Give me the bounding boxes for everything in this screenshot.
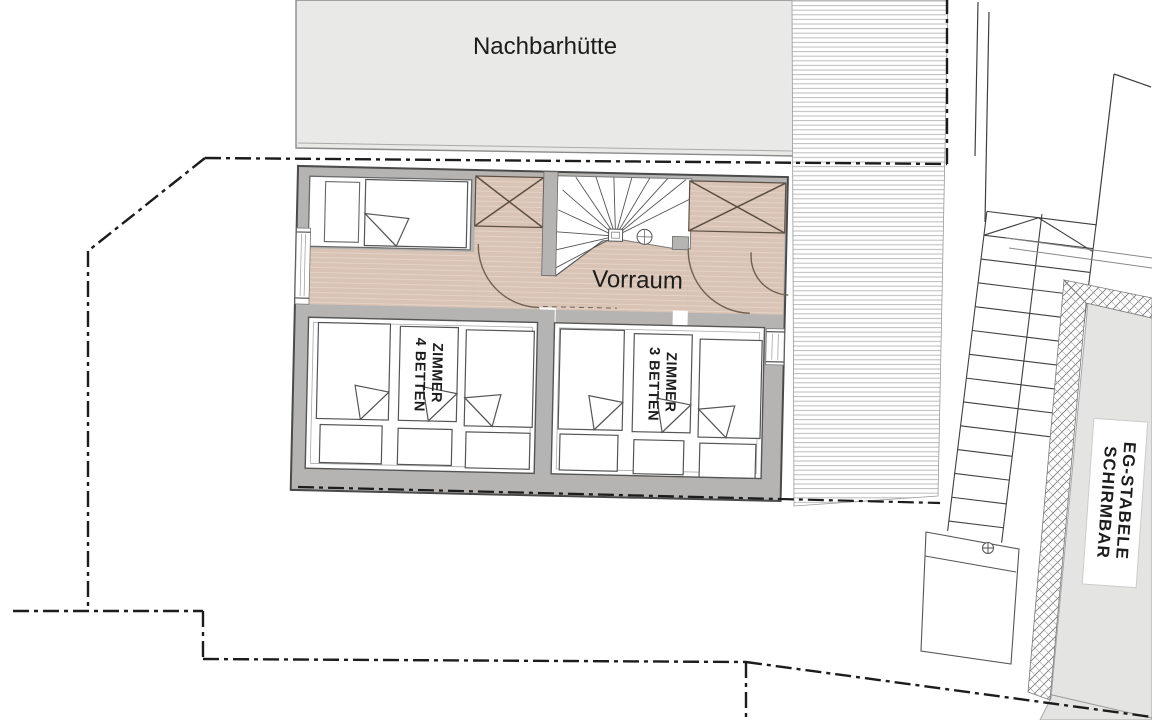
bed xyxy=(698,339,762,438)
bedroom-left: ZIMMER 4 BETTEN xyxy=(305,317,537,473)
vorraum-label: Vorraum xyxy=(592,266,683,295)
main-hut: Vorraum xyxy=(291,166,791,501)
room-right-line2: 3 BETTEN xyxy=(644,347,662,421)
window-west xyxy=(295,228,311,304)
stair-center-post xyxy=(608,229,622,241)
nightstand xyxy=(559,434,618,471)
room-left-line2: 4 BETTEN xyxy=(411,338,429,412)
shaft-box-left xyxy=(475,176,544,228)
room-left-line1: ZIMMER xyxy=(428,343,445,404)
nightstand xyxy=(397,428,452,465)
bed xyxy=(558,329,624,430)
room-right-line1: ZIMMER xyxy=(662,352,679,413)
floorplan-drawing: Nachbarhütte xyxy=(0,0,1152,720)
neighbor-hut-label: Nachbarhütte xyxy=(473,33,617,60)
bed xyxy=(464,330,534,428)
column-icon xyxy=(637,229,652,244)
window-east xyxy=(766,329,785,365)
bedroom-right: ZIMMER 3 BETTEN xyxy=(551,323,764,479)
bed xyxy=(316,322,390,420)
survey-point-icon xyxy=(983,543,994,554)
bed xyxy=(364,179,467,247)
bedroom-left-label: ZIMMER 4 BETTEN xyxy=(411,338,446,413)
stair-landing xyxy=(921,532,1019,664)
wall-pillar xyxy=(672,236,688,249)
striped-area xyxy=(792,0,948,506)
wall-stub xyxy=(542,172,558,276)
nightstand xyxy=(319,425,382,464)
neighbor-hut: Nachbarhütte xyxy=(296,0,795,156)
nightstand xyxy=(465,432,530,469)
floorplan-canvas: Nachbarhütte xyxy=(0,0,1152,720)
top-left-room xyxy=(308,176,472,250)
nightstand xyxy=(633,440,684,475)
nightstand xyxy=(699,443,756,478)
shaft-box-right xyxy=(689,181,786,233)
bedroom-right-label: ZIMMER 3 BETTEN xyxy=(644,347,679,422)
cabinet xyxy=(324,182,359,243)
